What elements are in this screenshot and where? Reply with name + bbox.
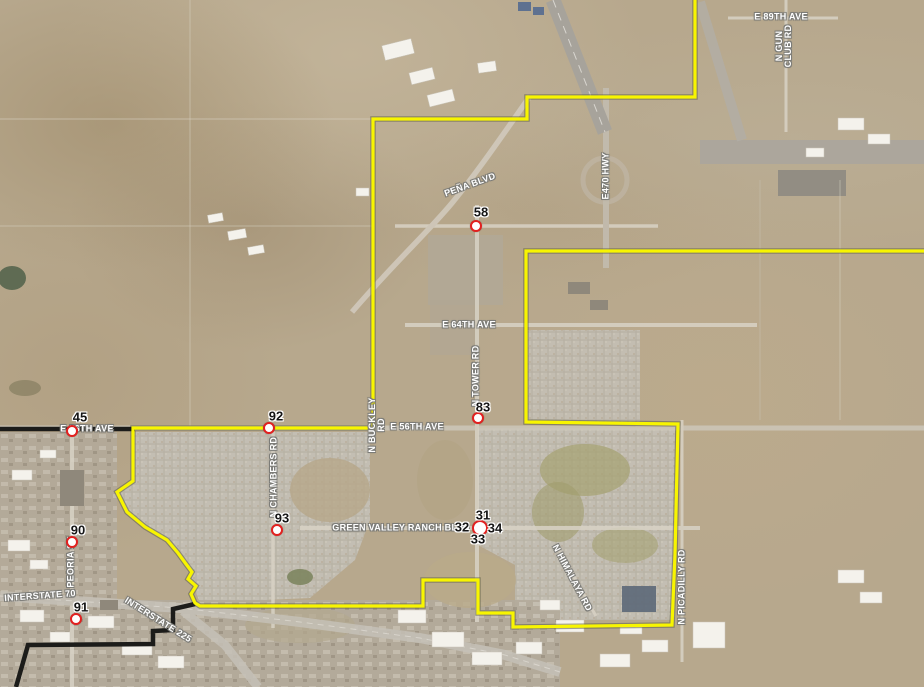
map-marker-label-83: 83 bbox=[476, 400, 490, 415]
map-marker-label-45: 45 bbox=[73, 410, 87, 425]
road-label-e-89th-ave: E 89TH AVE bbox=[754, 13, 808, 22]
road-label-green-valley-ranch-blvd: GREEN VALLEY RANCH BLVD bbox=[332, 524, 469, 533]
road-label-interstate-70: INTERSTATE 70 bbox=[4, 589, 76, 603]
map-marker-circle-45[interactable] bbox=[66, 425, 78, 437]
map-marker-label-32: 32 bbox=[455, 520, 469, 535]
map-marker-circle-93[interactable] bbox=[271, 524, 283, 536]
map-marker-label-34: 34 bbox=[488, 521, 502, 536]
road-label-n-gun-club-rd: N GUNCLUB RD bbox=[775, 25, 793, 68]
road-label-e-470-hwy: E470 HWY bbox=[602, 153, 611, 200]
map-marker-circle-92[interactable] bbox=[263, 422, 275, 434]
road-label-n-chambers-rd: N CHAMBERS RD bbox=[270, 437, 279, 517]
labels-and-markers-layer: E 89TH AVEN GUNCLUB RDPEÑA BLVDE470 HWYE… bbox=[0, 0, 924, 687]
map-marker-circle-91[interactable] bbox=[70, 613, 82, 625]
map-marker-label-93: 93 bbox=[275, 511, 289, 526]
road-label-e-56th-ave-mid: E 56TH AVE bbox=[390, 423, 444, 432]
road-label-n-buckley-rd: N BUCKLEYRD bbox=[368, 397, 386, 452]
satellite-map-viewport[interactable]: E 89TH AVEN GUNCLUB RDPEÑA BLVDE470 HWYE… bbox=[0, 0, 924, 687]
map-marker-label-91: 91 bbox=[74, 600, 88, 615]
road-label-pena-blvd: PEÑA BLVD bbox=[443, 172, 497, 199]
road-label-n-tower-rd: N TOWER RD bbox=[472, 346, 481, 407]
map-marker-label-90: 90 bbox=[71, 523, 85, 538]
map-marker-label-33: 33 bbox=[471, 532, 485, 547]
map-marker-label-58: 58 bbox=[474, 205, 488, 220]
road-label-n-picadilly-rd: N PICADILLY RD bbox=[678, 549, 687, 624]
road-label-n-himalaya-rd: N HIMALAYA RD bbox=[551, 543, 594, 612]
road-label-e-64th-ave: E 64TH AVE bbox=[442, 321, 496, 330]
map-marker-circle-58[interactable] bbox=[470, 220, 482, 232]
map-marker-label-92: 92 bbox=[269, 409, 283, 424]
map-marker-circle-90[interactable] bbox=[66, 536, 78, 548]
road-label-interstate-225: INTERSTATE 225 bbox=[123, 596, 193, 644]
